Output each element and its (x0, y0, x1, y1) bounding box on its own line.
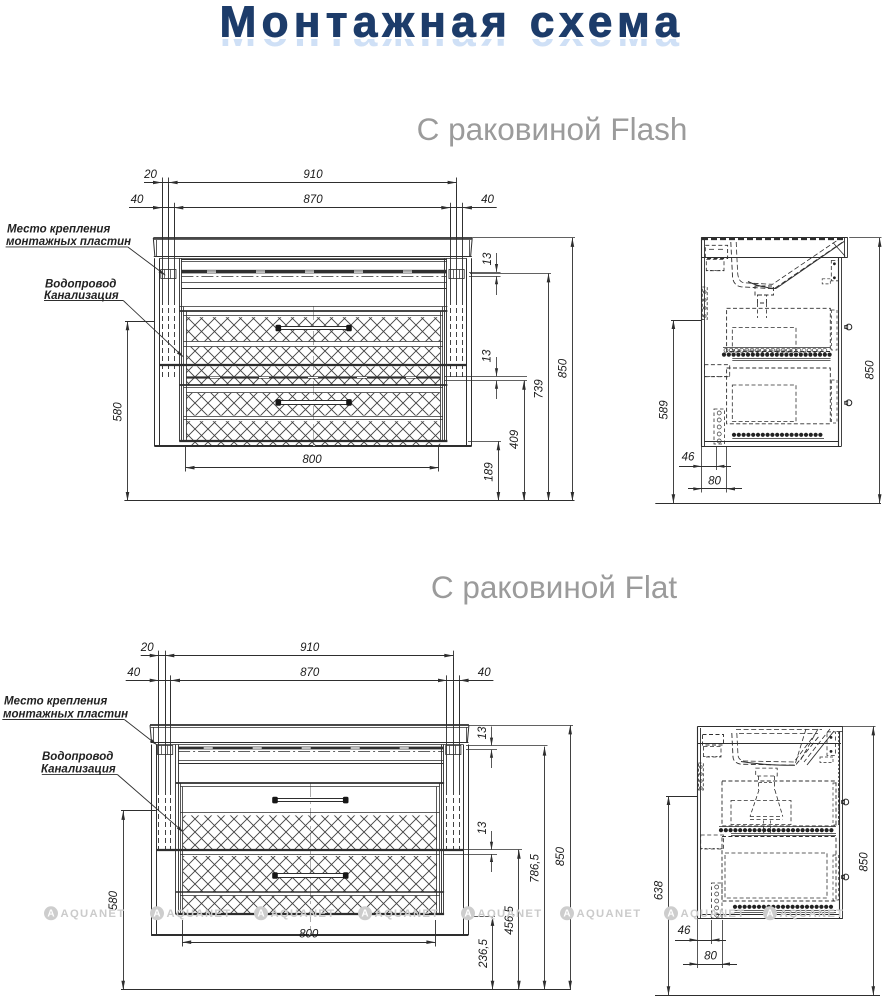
svg-text:Монтажная схема: Монтажная схема (220, 0, 685, 47)
svg-text:409: 409 (509, 429, 521, 449)
svg-text:800: 800 (299, 929, 319, 941)
svg-text:236,5: 236,5 (478, 939, 490, 969)
svg-text:Канализация: Канализация (41, 764, 116, 776)
svg-text:AQUANET: AQUANET (375, 908, 440, 920)
svg-text:739: 739 (534, 379, 546, 399)
svg-text:С раковиной Flat: С раковиной Flat (431, 569, 678, 605)
svg-text:AQUANET: AQUANET (271, 908, 336, 920)
svg-text:С раковиной Flash: С раковиной Flash (417, 111, 688, 147)
svg-text:580: 580 (108, 890, 120, 910)
svg-text:Водопровод: Водопровод (45, 279, 116, 291)
svg-text:A: A (563, 909, 570, 920)
svg-text:A: A (766, 909, 773, 920)
svg-text:Место крепления: Место крепления (4, 695, 107, 707)
svg-text:AQUANET: AQUANET (780, 908, 845, 920)
svg-text:20: 20 (140, 642, 154, 654)
svg-text:A: A (361, 909, 368, 920)
svg-text:13: 13 (482, 252, 494, 265)
svg-text:AQUANET: AQUANET (61, 908, 126, 920)
svg-text:13: 13 (477, 726, 489, 739)
svg-text:189: 189 (484, 462, 496, 482)
svg-text:AQUANET: AQUANET (167, 908, 232, 920)
svg-text:40: 40 (478, 667, 491, 679)
svg-text:20: 20 (143, 169, 157, 181)
svg-text:850: 850 (558, 358, 570, 378)
svg-text:A: A (257, 909, 264, 920)
svg-text:46: 46 (678, 925, 691, 937)
svg-text:Место крепления: Место крепления (7, 224, 110, 236)
svg-text:монтажных пластин: монтажных пластин (6, 236, 131, 248)
svg-text:80: 80 (708, 476, 721, 488)
svg-text:A: A (153, 909, 160, 920)
svg-text:870: 870 (303, 194, 323, 206)
svg-text:580: 580 (113, 402, 125, 422)
svg-text:850: 850 (865, 360, 877, 380)
svg-text:910: 910 (303, 169, 323, 181)
svg-text:80: 80 (704, 951, 717, 963)
svg-text:638: 638 (654, 880, 666, 900)
svg-text:AQUANET: AQUANET (478, 908, 543, 920)
svg-text:40: 40 (131, 194, 144, 206)
svg-text:13: 13 (477, 821, 489, 834)
svg-text:40: 40 (127, 667, 140, 679)
svg-text:800: 800 (302, 454, 322, 466)
svg-text:A: A (667, 909, 674, 920)
svg-text:A: A (464, 909, 471, 920)
svg-text:850: 850 (555, 846, 567, 866)
svg-text:589: 589 (658, 400, 670, 420)
svg-text:870: 870 (300, 667, 320, 679)
svg-text:монтажных пластин: монтажных пластин (3, 708, 128, 720)
svg-text:AQUANET: AQUANET (577, 908, 642, 920)
svg-text:AQUANET: AQUANET (681, 908, 746, 920)
svg-text:46: 46 (682, 452, 695, 464)
svg-text:850: 850 (858, 852, 870, 872)
svg-text:40: 40 (481, 194, 494, 206)
svg-text:Водопровод: Водопровод (42, 751, 113, 763)
svg-text:A: A (47, 909, 54, 920)
svg-text:13: 13 (482, 349, 494, 362)
svg-text:786,5: 786,5 (530, 854, 542, 883)
svg-text:910: 910 (300, 642, 320, 654)
